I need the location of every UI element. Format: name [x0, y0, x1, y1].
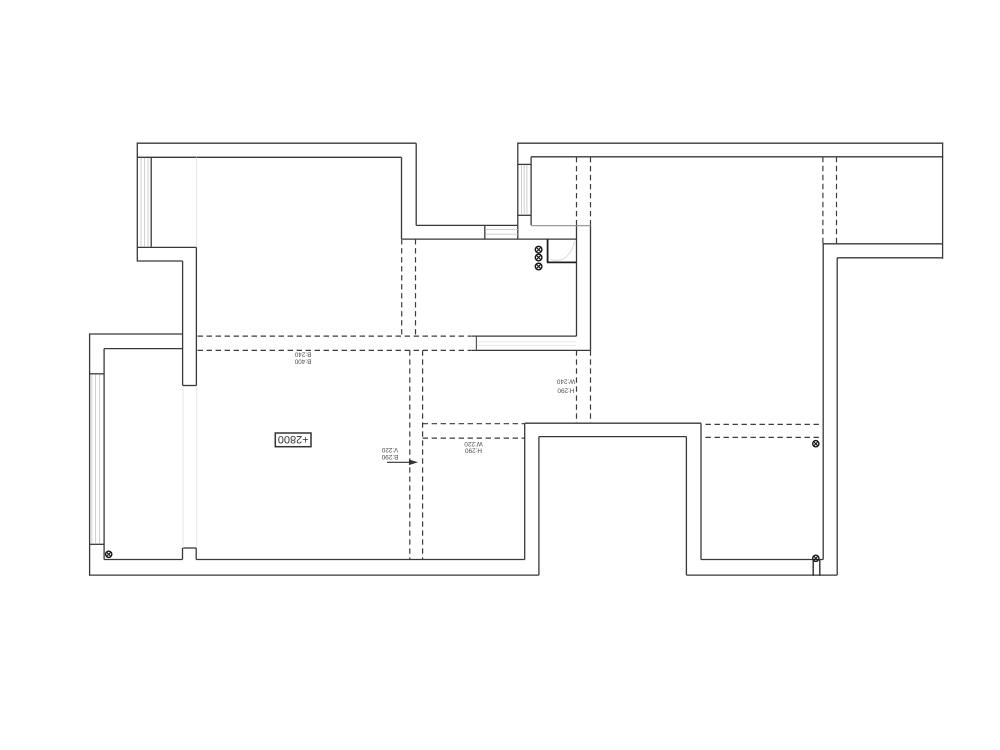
- svg-text:H:290: H:290: [557, 387, 574, 394]
- svg-text:B:290: B:290: [381, 453, 398, 460]
- svg-text:B:400: B:400: [294, 358, 311, 365]
- svg-text:W:220: W:220: [464, 440, 483, 447]
- svg-text:W:240: W:240: [556, 378, 575, 385]
- svg-text:B:240: B:240: [294, 351, 311, 358]
- svg-text:V:220: V:220: [381, 446, 398, 453]
- svg-text:+2800: +2800: [278, 433, 309, 445]
- svg-text:H:290: H:290: [465, 446, 482, 453]
